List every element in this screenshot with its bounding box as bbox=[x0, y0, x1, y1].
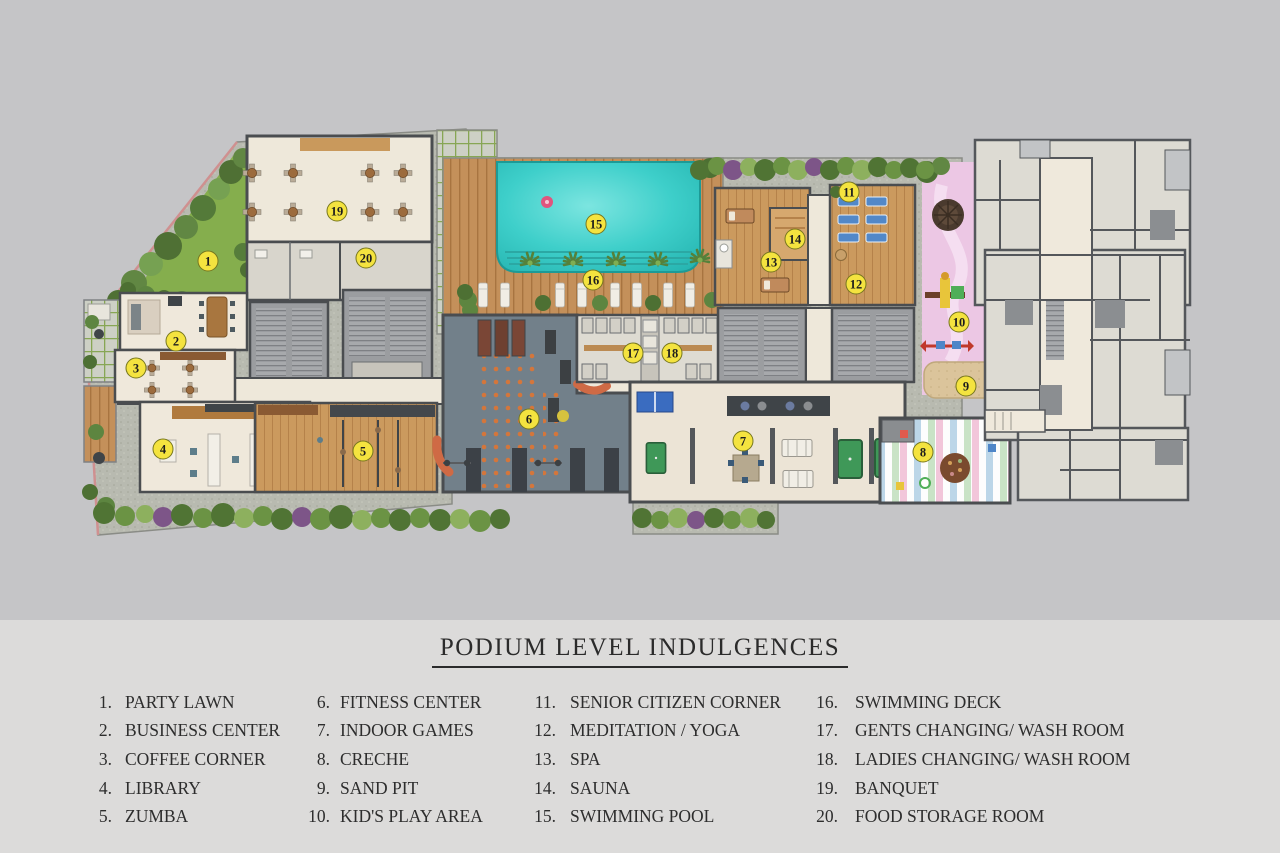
legend-item: 15.SWIMMING POOL bbox=[524, 802, 781, 831]
amenity-marker: 7 bbox=[733, 431, 753, 451]
svg-text:3: 3 bbox=[133, 362, 139, 376]
legend-item: 6.FITNESS CENTER bbox=[298, 688, 483, 717]
legend-item: 20.FOOD STORAGE ROOM bbox=[804, 802, 1130, 831]
amenity-marker: 15 bbox=[586, 214, 606, 234]
play-rug-icon bbox=[940, 453, 970, 483]
svg-text:17: 17 bbox=[627, 347, 640, 361]
amenity-marker: 12 bbox=[846, 274, 866, 294]
legend-item: 5.ZUMBA bbox=[86, 802, 280, 831]
amenity-marker: 2 bbox=[166, 331, 186, 351]
legend-panel: PODIUM LEVEL INDULGENCES 1.PARTY LAWN 2.… bbox=[0, 620, 1280, 853]
svg-text:12: 12 bbox=[850, 278, 863, 292]
amenity-marker: 6 bbox=[519, 409, 539, 429]
amenity-marker: 14 bbox=[785, 229, 805, 249]
amenity-marker: 9 bbox=[956, 376, 976, 396]
party-lawn bbox=[107, 148, 256, 312]
legend-item: 12.MEDITATION / YOGA bbox=[524, 717, 781, 746]
svg-text:19: 19 bbox=[331, 205, 344, 219]
svg-text:7: 7 bbox=[740, 435, 746, 449]
legend-item: 13.SPA bbox=[524, 745, 781, 774]
amenity-marker: 13 bbox=[761, 252, 781, 272]
amenity-marker: 18 bbox=[662, 343, 682, 363]
legend-item: 10.KID'S PLAY AREA bbox=[298, 802, 483, 831]
svg-text:1: 1 bbox=[205, 255, 211, 269]
amenity-marker: 1 bbox=[198, 251, 218, 271]
legend-column-3: 11.SENIOR CITIZEN CORNER 12.MEDITATION /… bbox=[524, 688, 781, 831]
amenity-marker: 11 bbox=[839, 182, 859, 202]
legend-column-4: 16.SWIMMING DECK 17.GENTS CHANGING/ WASH… bbox=[804, 688, 1130, 831]
legend-item: 7.INDOOR GAMES bbox=[298, 717, 483, 746]
legend-column-1: 1.PARTY LAWN 2.BUSINESS CENTER 3.COFFEE … bbox=[86, 688, 280, 831]
legend-item: 17.GENTS CHANGING/ WASH ROOM bbox=[804, 717, 1130, 746]
svg-text:13: 13 bbox=[765, 256, 778, 270]
svg-text:20: 20 bbox=[360, 252, 373, 266]
legend-item: 18.LADIES CHANGING/ WASH ROOM bbox=[804, 745, 1130, 774]
legend-item: 14.SAUNA bbox=[524, 774, 781, 803]
amenity-marker: 20 bbox=[356, 248, 376, 268]
amenity-marker: 17 bbox=[623, 343, 643, 363]
changing-rooms bbox=[577, 315, 723, 382]
legend-item: 9.SAND PIT bbox=[298, 774, 483, 803]
floor-plan-graphic: 1 2 3 4 5 6 7 8 9 10 bbox=[0, 0, 1280, 620]
svg-text:15: 15 bbox=[590, 218, 603, 232]
amenity-marker: 10 bbox=[949, 312, 969, 332]
legend-item: 8.CRECHE bbox=[298, 745, 483, 774]
amenity-marker: 4 bbox=[153, 439, 173, 459]
amenity-marker: 5 bbox=[353, 441, 373, 461]
legend-item: 19.BANQUET bbox=[804, 774, 1130, 803]
svg-text:10: 10 bbox=[953, 316, 966, 330]
legend-item: 3.COFFEE CORNER bbox=[86, 745, 280, 774]
legend-item: 1.PARTY LAWN bbox=[86, 688, 280, 717]
amenity-marker: 19 bbox=[327, 201, 347, 221]
svg-text:8: 8 bbox=[920, 446, 926, 460]
amenity-marker: 8 bbox=[913, 442, 933, 462]
zumba-studio bbox=[255, 403, 437, 492]
stair-core-right bbox=[718, 308, 914, 382]
svg-text:5: 5 bbox=[360, 445, 366, 459]
svg-text:14: 14 bbox=[789, 233, 802, 247]
page-title: PODIUM LEVEL INDULGENCES bbox=[0, 634, 1280, 668]
legend-item: 4.LIBRARY bbox=[86, 774, 280, 803]
svg-text:16: 16 bbox=[587, 274, 600, 288]
svg-text:11: 11 bbox=[843, 186, 855, 200]
svg-text:18: 18 bbox=[666, 347, 679, 361]
svg-text:2: 2 bbox=[173, 335, 179, 349]
legend-item: 16.SWIMMING DECK bbox=[804, 688, 1130, 717]
indoor-games-room bbox=[630, 382, 905, 502]
svg-text:6: 6 bbox=[526, 413, 532, 427]
legend-column-2: 6.FITNESS CENTER 7.INDOOR GAMES 8.CRECHE… bbox=[298, 688, 483, 831]
banquet-hall bbox=[243, 136, 432, 242]
svg-text:4: 4 bbox=[160, 443, 167, 457]
poster: 1 2 3 4 5 6 7 8 9 10 bbox=[0, 0, 1280, 853]
amenity-marker: 16 bbox=[583, 270, 603, 290]
amenity-marker: 3 bbox=[126, 358, 146, 378]
svg-text:9: 9 bbox=[963, 380, 969, 394]
legend-item: 2.BUSINESS CENTER bbox=[86, 717, 280, 746]
floor-plan: 1 2 3 4 5 6 7 8 9 10 bbox=[0, 0, 1280, 620]
legend-item: 11.SENIOR CITIZEN CORNER bbox=[524, 688, 781, 717]
